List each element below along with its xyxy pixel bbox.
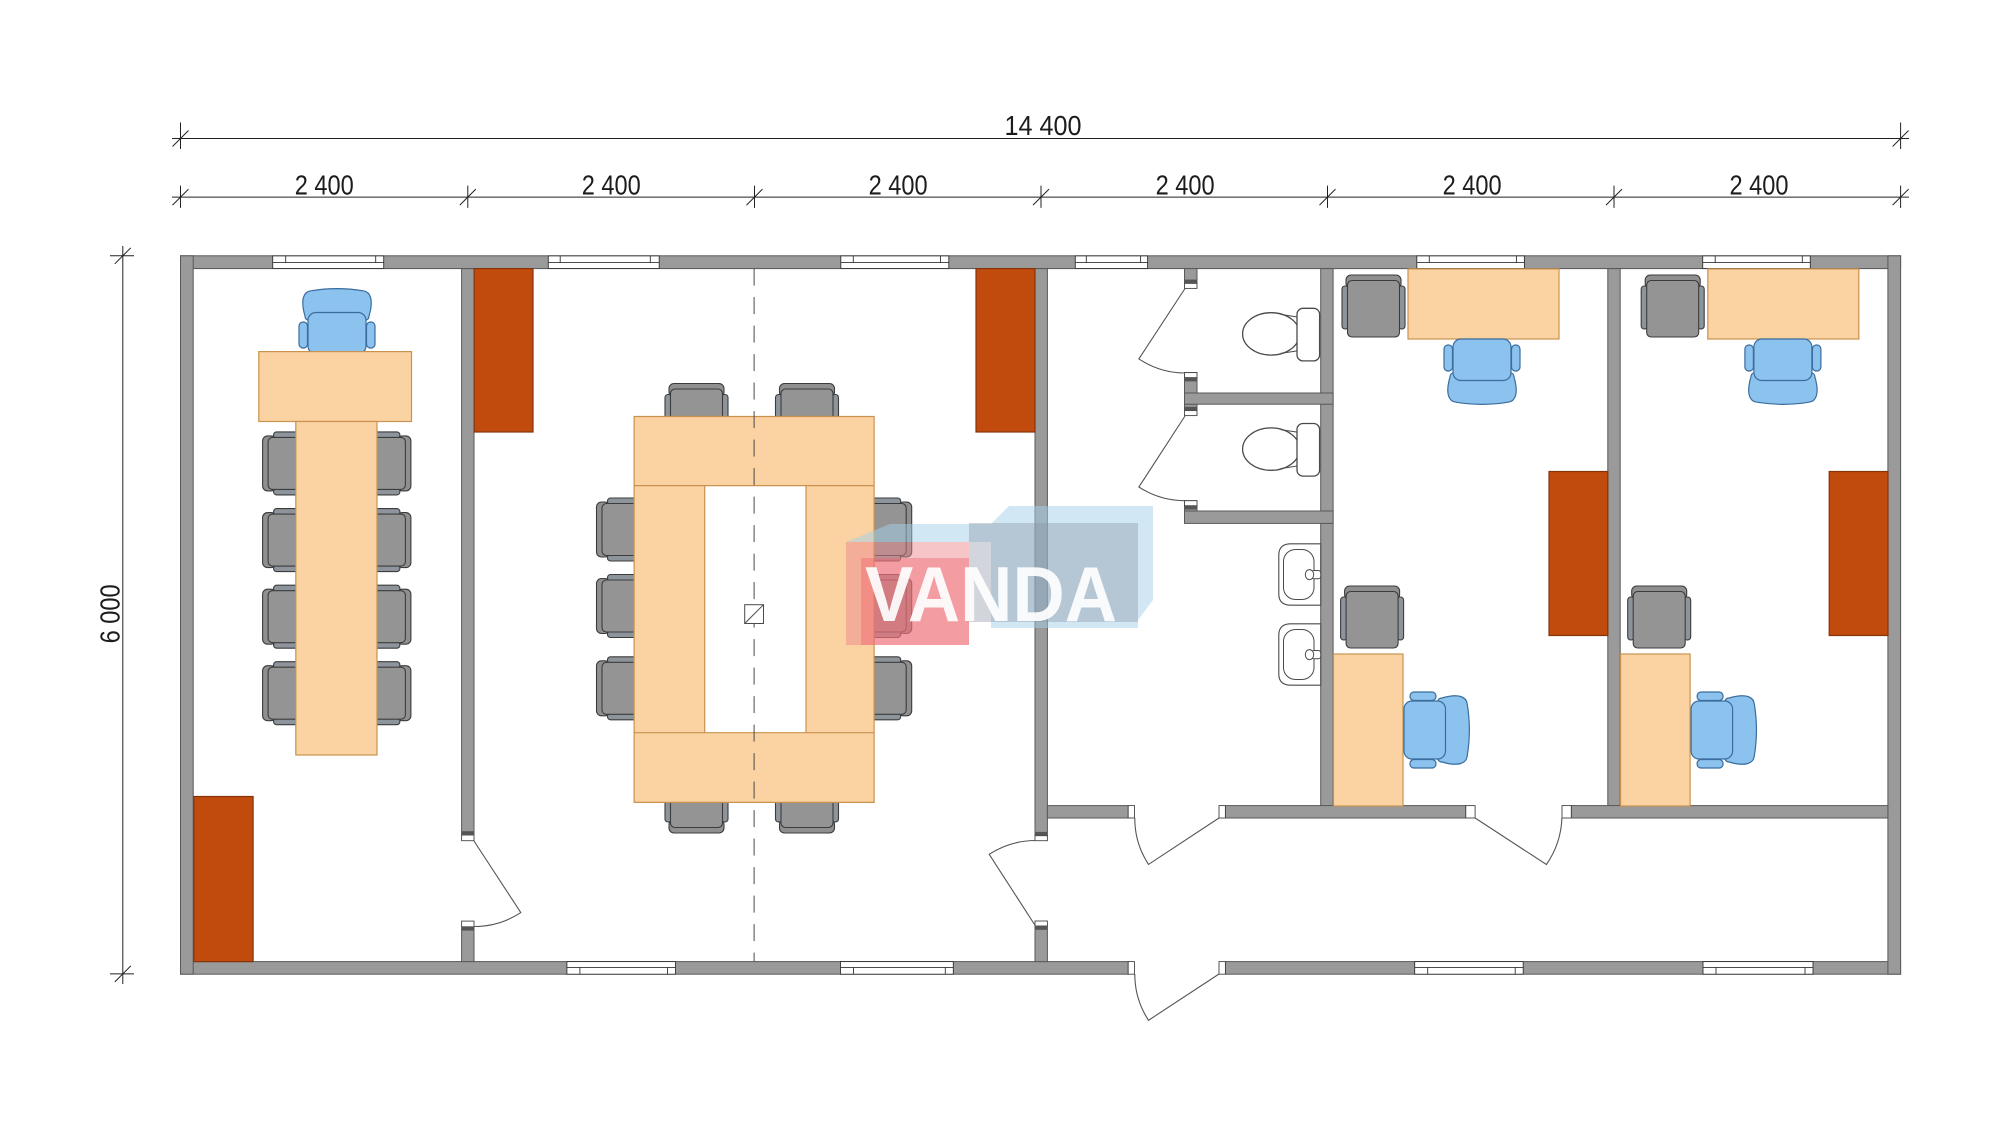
svg-text:VANDA: VANDA [865,550,1117,638]
svg-text:6 000: 6 000 [95,584,126,643]
svg-text:2 400: 2 400 [1156,169,1215,200]
svg-text:2 400: 2 400 [582,169,641,200]
svg-text:2 400: 2 400 [1730,169,1789,200]
svg-text:14 400: 14 400 [1005,110,1082,141]
svg-text:2 400: 2 400 [1443,169,1502,200]
svg-text:2 400: 2 400 [295,169,354,200]
svg-text:2 400: 2 400 [869,169,928,200]
